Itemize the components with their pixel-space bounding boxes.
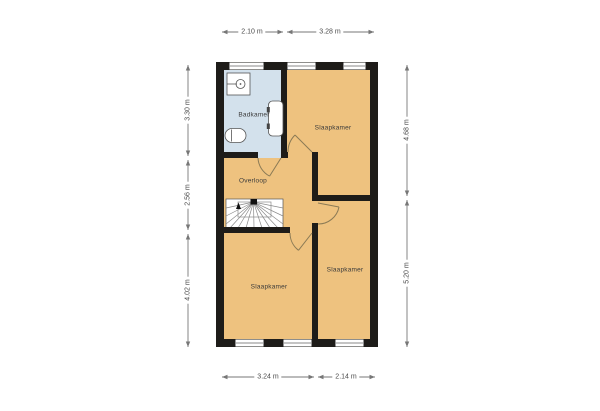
stairs — [226, 199, 283, 229]
window — [235, 340, 264, 347]
floorplan-canvas: Badkamer Slaapkamer Overloop Slaapkamer … — [0, 0, 600, 411]
wall-bathroom-landing-b — [281, 152, 288, 158]
wall-bathroom-landing-a — [220, 152, 258, 158]
dim-bottom-2: 2.14 m — [332, 373, 359, 382]
room-label-badkamer: Badkamer — [238, 112, 269, 119]
wall-landing-bedroom-lower — [216, 227, 290, 233]
dim-top-2: 3.28 m — [316, 28, 343, 37]
dim-left-2: 2.56 m — [184, 181, 193, 208]
window — [343, 63, 366, 70]
wall-bedrooms-vertical — [312, 223, 318, 347]
floorplan-drawing — [0, 0, 600, 411]
window — [287, 63, 316, 70]
window — [229, 63, 264, 70]
dim-left-3: 4.02 m — [184, 276, 193, 303]
window — [283, 340, 312, 347]
room-label-overloop: Overloop — [239, 178, 267, 185]
dim-right-2: 5.20 m — [403, 259, 412, 286]
room-label-slaapkamer-right: Slaapkamer — [327, 267, 364, 274]
room-label-slaapkamer-top: Slaapkamer — [315, 125, 352, 132]
stairs-newel-mark — [251, 199, 258, 205]
wall-right — [370, 62, 378, 347]
window — [335, 340, 364, 347]
dim-left-1: 3.30 m — [184, 96, 193, 123]
wall-left — [216, 62, 224, 347]
toilet-icon — [225, 129, 246, 143]
dim-bottom-1: 3.24 m — [254, 373, 281, 382]
dim-top-1: 2.10 m — [238, 28, 265, 37]
room-label-slaapkamer-left: Slaapkamer — [251, 284, 288, 291]
dim-right-1: 4.68 m — [403, 116, 412, 143]
radiator-icon — [267, 101, 283, 136]
wall-bedrooms-horizontal — [312, 195, 378, 201]
wall-landing-bedroom-upper — [312, 152, 318, 200]
sink-icon — [227, 73, 250, 95]
